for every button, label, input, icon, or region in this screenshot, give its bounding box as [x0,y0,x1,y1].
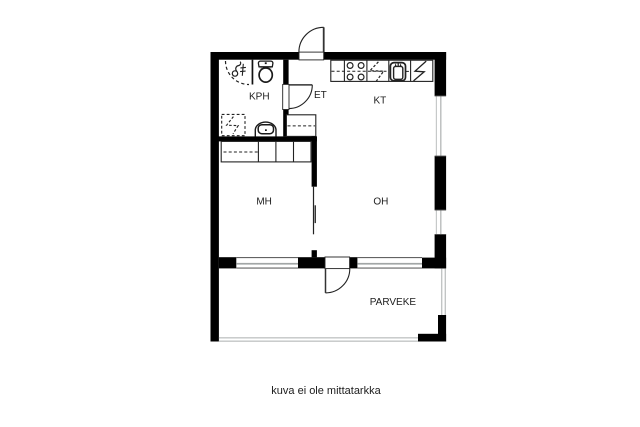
svg-text:KT: KT [374,95,387,106]
svg-text:KPH: KPH [249,91,270,102]
svg-text:ET: ET [314,90,327,101]
svg-text:kuva ei ole mittatarkka: kuva ei ole mittatarkka [271,385,381,397]
svg-text:MH: MH [256,197,272,208]
svg-text:PARVEKE: PARVEKE [370,297,417,308]
svg-text:OH: OH [373,197,388,208]
